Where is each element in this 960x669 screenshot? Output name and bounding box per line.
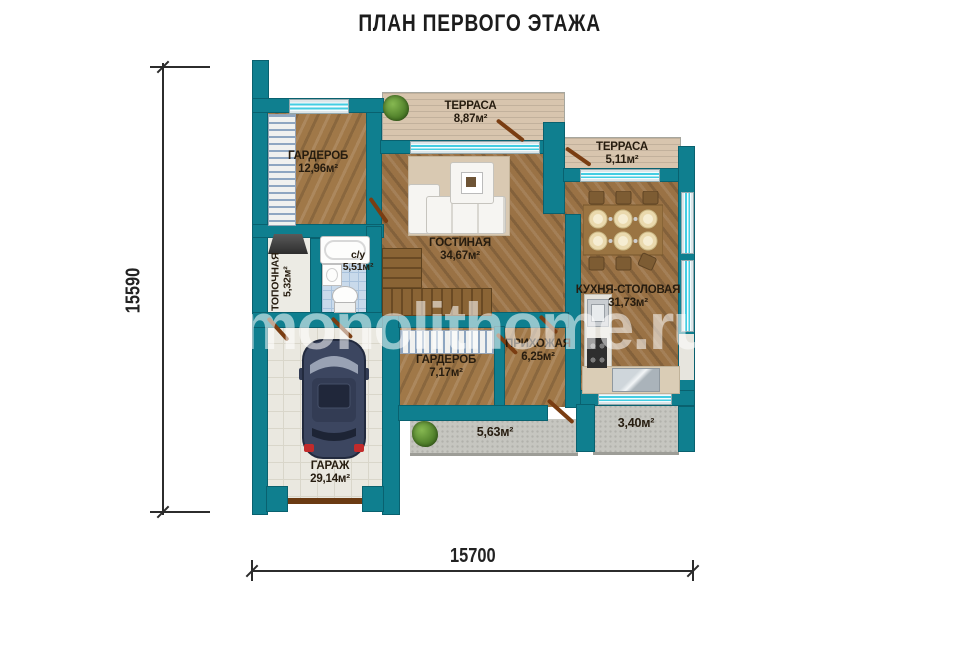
wall-bottom-row [398,405,548,421]
room-name: ГОСТИНАЯ [429,237,491,249]
room-label-porch-front: 5,63м² [430,425,560,439]
room-area: 6,25м² [521,351,555,363]
window-kitchen-right-1 [681,192,694,254]
wall-porch-back-right [678,406,695,452]
room-area: 7,17м² [429,367,463,379]
wall-garage-pilaster-left [266,486,288,512]
room-label-boiler: ТОПОЧНАЯ 5,32м² [244,244,320,320]
room-label-living: ГОСТИНАЯ 34,67м² [395,237,525,263]
room-name: ТОПОЧНАЯ [269,253,281,312]
room-name: КУХНЯ-СТОЛОВАЯ [576,284,680,296]
room-name: ПРИХОЖАЯ [505,338,571,350]
room-name: ГАРДЕРОБ [288,150,348,162]
dimension-label-bottom: 15700 [418,545,528,568]
room-label-wardrobe-top: ГАРДЕРОБ 12,96м² [258,150,378,176]
room-area: 5,63м² [477,425,514,439]
page-title: ПЛАН ПЕРВОГО ЭТАЖА [0,10,960,38]
wall-right-light-block [679,334,694,380]
room-name: ГАРДЕРОБ [416,354,476,366]
wall-garage-pilaster-right [362,486,384,512]
room-area: 31,73м² [608,297,648,309]
window-living-terrace [410,141,540,154]
dimension-line-bottom [252,570,694,572]
dimension-value: 15700 [450,545,496,568]
wardrobe-shelving-icon [400,330,494,354]
dimension-label-left: 15590 [106,262,162,318]
room-label-kitchen: КУХНЯ-СТОЛОВАЯ 31,73м² [558,284,698,310]
dishwasher-icon [612,368,660,392]
toilet-tank [334,302,356,313]
room-label-bathroom: с/у 5,51м² [334,250,382,274]
window-wardrobe-top [289,99,349,114]
dining-table-icon [583,191,663,273]
window-kitchen-terrace [580,169,660,182]
room-label-terrace-right: ТЕРРАСА 5,11м² [567,141,677,167]
wall-terrace-block [543,122,565,214]
dimension-line-left [162,63,164,515]
stove-icon [587,338,607,368]
coffee-table [450,162,494,204]
garage-door-line [288,498,362,504]
room-name: ТЕРРАСА [445,100,497,112]
car-icon [299,338,369,462]
floor-plan-page: ПЛАН ПЕРВОГО ЭТАЖА [0,0,960,669]
room-area: 5,51м² [343,261,374,273]
room-area: 3,40м² [618,416,655,430]
room-label-garage: ГАРАЖ 29,14м² [275,460,385,486]
coffee-table-center [466,177,476,187]
room-area: 29,14м² [310,473,350,485]
room-label-hallway: ПРИХОЖАЯ 6,25м² [498,338,578,364]
room-name: ГАРАЖ [311,460,349,472]
dimension-value: 15590 [123,267,146,313]
stairs-flight-lower [382,288,492,316]
room-label-porch-back: 3,40м² [593,416,679,430]
wall-hall-kitchen [565,214,581,408]
room-name: с/у [351,249,365,261]
room-area: 12,96м² [298,163,338,175]
room-area: 5,32м² [281,267,293,298]
room-name: ТЕРРАСА [596,141,648,153]
room-name-rotated: ТОПОЧНАЯ 5,32м² [270,253,294,312]
room-area: 8,87м² [454,113,488,125]
room-label-wardrobe-mid: ГАРДЕРОБ 7,17м² [400,354,492,380]
room-label-terrace-top: ТЕРРАСА 8,87м² [408,100,533,126]
plant-icon [383,95,409,121]
room-area: 5,11м² [606,154,639,166]
room-area: 34,67м² [440,250,480,262]
wall-chimney-stub [252,60,269,100]
